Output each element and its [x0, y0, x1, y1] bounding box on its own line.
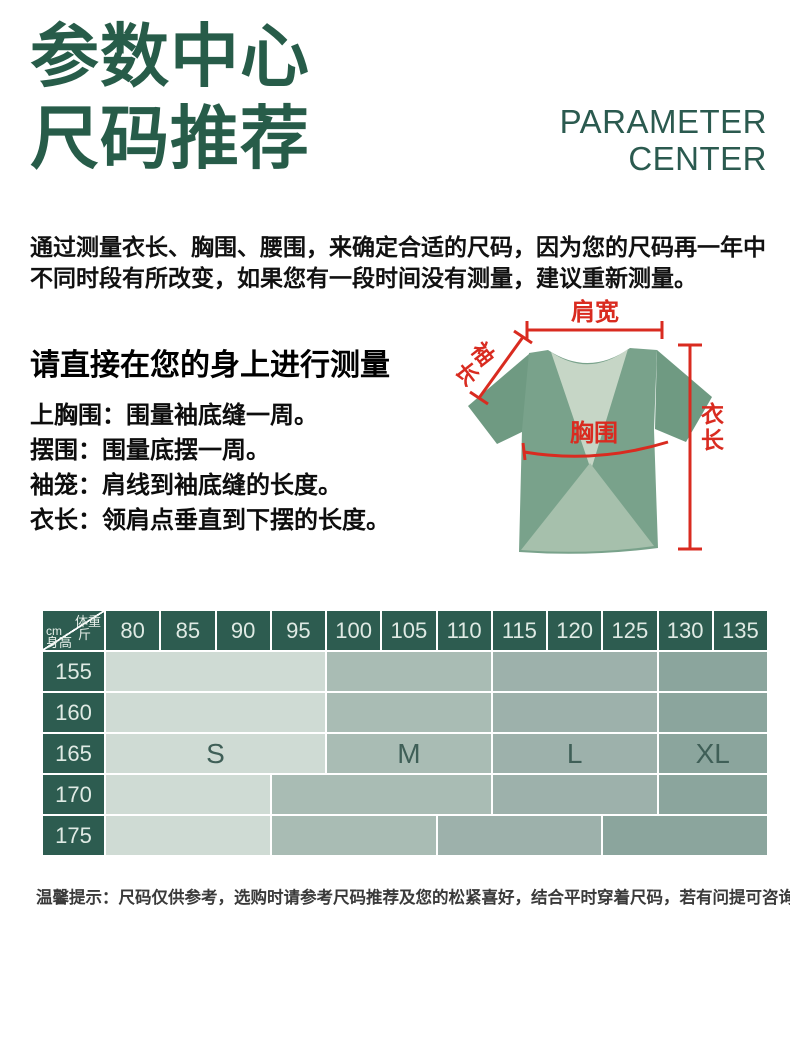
chest-tick-left [523, 443, 525, 460]
size-table-corner-cell: 体重 斤 cm 身高 [43, 611, 104, 650]
measure-list-item: 摆围：围量底摆一周。 [30, 439, 390, 463]
intro-line1: 通过测量衣长、胸围、腰围，来确定合适的尺码，因为您的尺码再一年中 [30, 232, 766, 263]
sleeve-length-label: 袖长 [450, 338, 499, 392]
size-block-S [106, 693, 325, 732]
height-label-cell: 165 [43, 734, 104, 773]
size-block-L [493, 652, 657, 691]
size-block-M [327, 652, 491, 691]
weight-header-cell: 130 [659, 611, 712, 650]
size-block-L: L [493, 734, 657, 773]
size-block-XL: XL [659, 734, 768, 773]
size-block-L [493, 693, 657, 732]
size-block-S [106, 652, 325, 691]
weight-header-cell: 110 [438, 611, 491, 650]
page-subtitle: PARAMETER CENTER [560, 103, 767, 177]
weight-header-cell: 90 [217, 611, 270, 650]
weight-header-cell: 125 [603, 611, 656, 650]
weight-header-cell: 100 [327, 611, 380, 650]
weight-header-cell: 105 [382, 611, 435, 650]
size-block-L [438, 816, 602, 855]
height-label-cell: 170 [43, 775, 104, 814]
size-block-XL [659, 775, 768, 814]
corner-weight-unit: 斤 [78, 624, 91, 643]
measure-list: 上胸围：围量袖底缝一周。摆围：围量底摆一周。袖笼：肩线到袖底缝的长度。衣长：领肩… [30, 404, 390, 544]
page-subtitle-line1: PARAMETER [560, 103, 767, 140]
measure-list-item: 袖笼：肩线到袖底缝的长度。 [30, 474, 390, 498]
measure-heading: 请直接在您的身上进行测量 [30, 340, 390, 384]
corner-height-label: 身高 [46, 632, 72, 651]
size-block-M: M [327, 734, 491, 773]
size-block-S [106, 775, 270, 814]
size-block-L [493, 775, 657, 814]
weight-header-cell: 95 [272, 611, 325, 650]
sleeve-length-tick-top [514, 331, 532, 343]
weight-header-cell: 135 [714, 611, 767, 650]
height-label-cell: 160 [43, 693, 104, 732]
footer-note: 温馨提示：尺码仅供参考，选购时请参考尺码推荐及您的松紧喜好，结合平时穿着尺码，若… [36, 884, 776, 908]
measure-list-item: 衣长：领肩点垂直到下摆的长度。 [30, 509, 390, 533]
weight-header-cell: 85 [161, 611, 214, 650]
size-block-XL [603, 816, 767, 855]
weight-header-cell: 120 [548, 611, 601, 650]
size-block-XL [659, 693, 768, 732]
page-subtitle-line2: CENTER [560, 140, 767, 177]
weight-header-cell: 80 [106, 611, 159, 650]
weight-header-cell: 115 [493, 611, 546, 650]
height-label-cell: 155 [43, 652, 104, 691]
size-block-S: S [106, 734, 325, 773]
garment-length-label: 衣长 [701, 401, 725, 453]
page-title: 参数中心 尺码推荐 [30, 16, 310, 180]
shoulder-width-label: 肩宽 [571, 298, 619, 326]
size-block-M [272, 775, 491, 814]
size-table: 体重 斤 cm 身高 80859095100105110115120125130… [43, 611, 767, 855]
chest-label: 胸围 [570, 420, 618, 447]
page-title-line1: 参数中心 [30, 16, 310, 98]
size-block-XL [659, 652, 768, 691]
size-guide-page: 参数中心 尺码推荐 PARAMETER CENTER 通过测量衣长、胸围、腰围，… [0, 0, 790, 1064]
shirt-measurement-figure: 肩宽 袖长 胸围 衣长 [440, 285, 770, 585]
size-block-M [272, 816, 436, 855]
page-title-line2: 尺码推荐 [30, 98, 310, 180]
measure-list-item: 上胸围：围量袖底缝一周。 [30, 404, 390, 428]
size-block-S [106, 816, 270, 855]
height-label-cell: 175 [43, 816, 104, 855]
size-block-M [327, 693, 491, 732]
